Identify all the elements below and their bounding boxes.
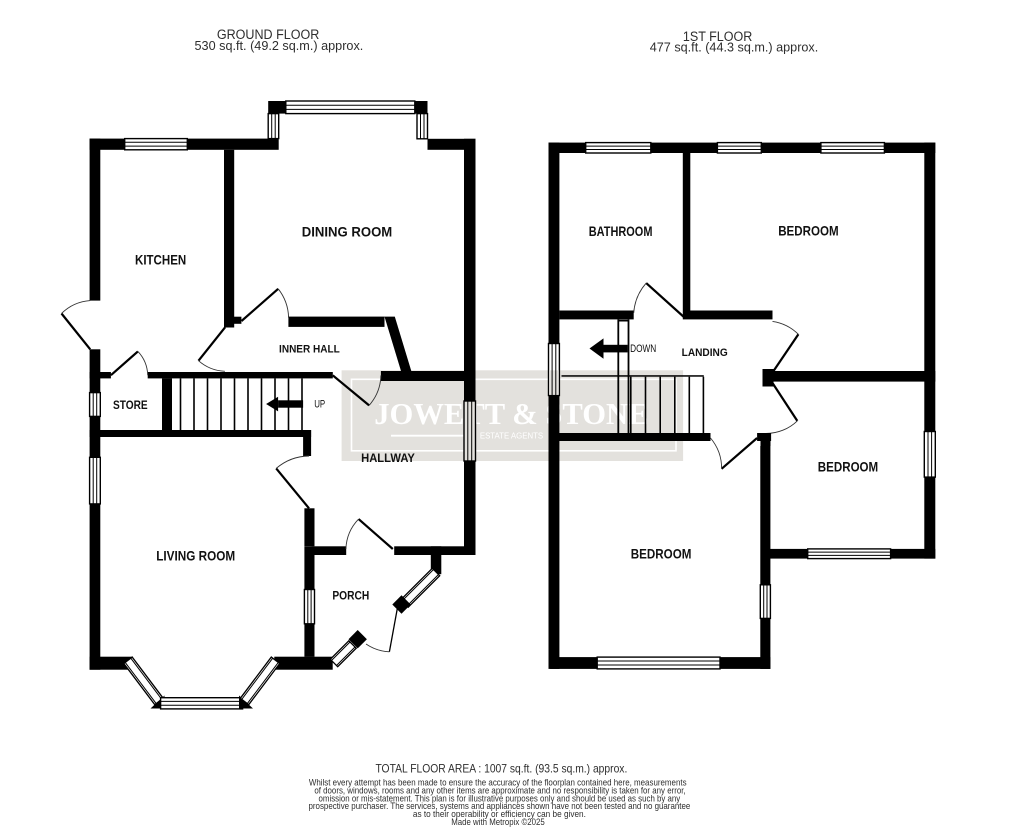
svg-text:STORE: STORE <box>113 398 148 412</box>
svg-text:530 sq.ft. (49.2 sq.m.) approx: 530 sq.ft. (49.2 sq.m.) approx. <box>195 38 364 53</box>
svg-text:BEDROOM: BEDROOM <box>818 458 878 474</box>
svg-text:UP: UP <box>314 398 325 410</box>
svg-text:Made with Metropix ©2025: Made with Metropix ©2025 <box>451 817 545 827</box>
svg-text:ESTATE AGENTS: ESTATE AGENTS <box>480 432 543 441</box>
svg-text:DINING ROOM: DINING ROOM <box>302 224 393 239</box>
svg-text:LANDING: LANDING <box>682 347 728 359</box>
svg-text:HALLWAY: HALLWAY <box>361 451 415 465</box>
svg-text:JOWETT & STONE: JOWETT & STONE <box>374 397 648 431</box>
svg-text:477 sq.ft. (44.3 sq.m.) approx: 477 sq.ft. (44.3 sq.m.) approx. <box>650 40 819 55</box>
svg-text:BEDROOM: BEDROOM <box>778 222 838 238</box>
svg-text:BATHROOM: BATHROOM <box>589 224 653 239</box>
svg-text:INNER HALL: INNER HALL <box>279 343 340 355</box>
svg-text:BEDROOM: BEDROOM <box>631 546 692 562</box>
svg-text:KITCHEN: KITCHEN <box>135 252 186 267</box>
svg-text:PORCH: PORCH <box>332 589 369 603</box>
svg-text:TOTAL FLOOR AREA : 1007 sq.ft.: TOTAL FLOOR AREA : 1007 sq.ft. (93.5 sq.… <box>375 761 627 775</box>
svg-text:LIVING ROOM: LIVING ROOM <box>156 549 235 564</box>
svg-text:DOWN: DOWN <box>630 343 656 355</box>
